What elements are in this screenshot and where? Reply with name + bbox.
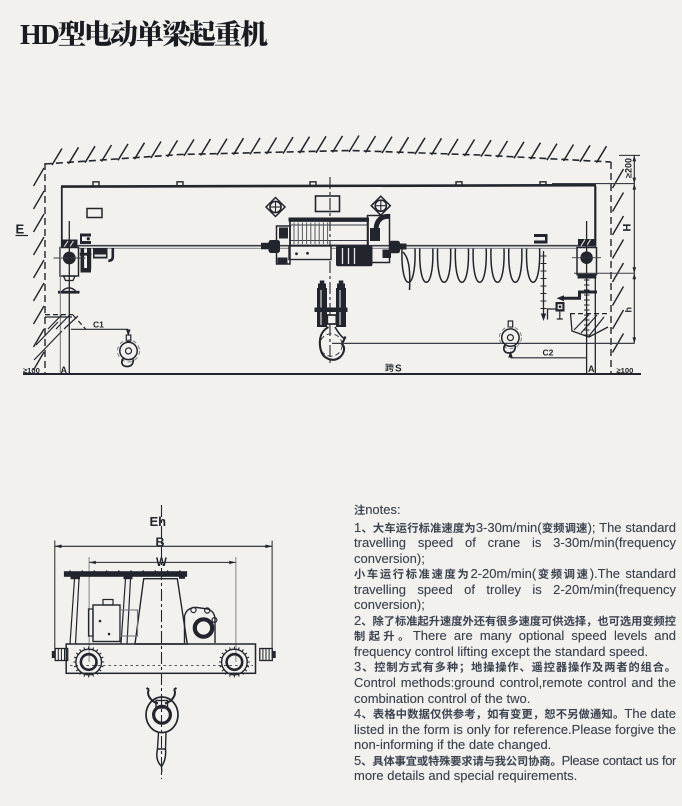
svg-text:A: A xyxy=(588,364,595,374)
svg-text:h: h xyxy=(624,307,634,313)
svg-text:≥100: ≥100 xyxy=(617,366,634,375)
svg-text:B: B xyxy=(156,536,165,550)
svg-text:≥100: ≥100 xyxy=(23,366,40,375)
svg-text:Eh: Eh xyxy=(150,514,167,529)
svg-text:H: H xyxy=(621,224,633,232)
svg-text:S: S xyxy=(395,364,402,375)
svg-text:≥200: ≥200 xyxy=(623,158,633,178)
svg-text:跨: 跨 xyxy=(385,361,394,374)
svg-text:E: E xyxy=(16,222,25,237)
svg-text:C1: C1 xyxy=(93,320,104,330)
svg-text:A: A xyxy=(61,365,68,375)
svg-text:C2: C2 xyxy=(543,348,554,358)
